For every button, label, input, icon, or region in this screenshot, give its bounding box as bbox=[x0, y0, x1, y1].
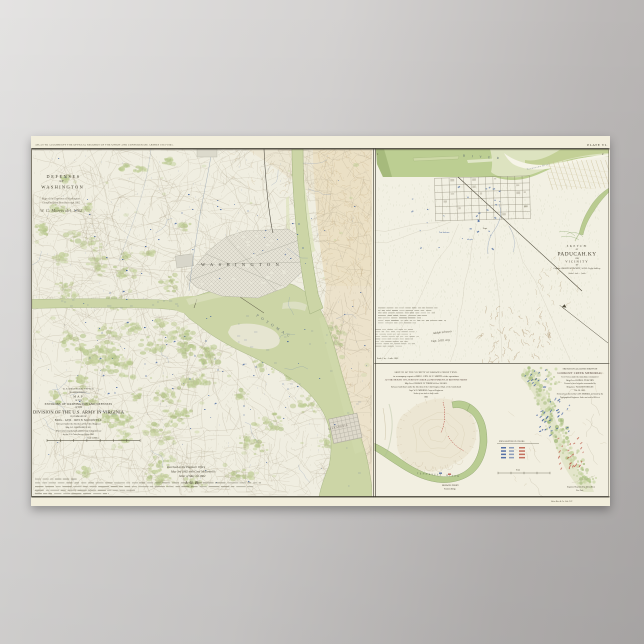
svg-text:Compiled from Boschkes map 186: Compiled from Boschkes map 1862 bbox=[42, 202, 81, 205]
svg-text:W. G. Morris del. 1862: W. G. Morris del. 1862 bbox=[40, 208, 83, 213]
svg-text:Captain ADOLPH SCHWARTZ, 2d I: Captain ADOLPH SCHWARTZ, 2d ILL. Light A… bbox=[554, 267, 602, 270]
svg-text:Brig.Gen. JOHN B. TURCHIN: Brig.Gen. JOHN B. TURCHIN bbox=[566, 379, 594, 382]
svg-text:PLATE VI.: PLATE VI. bbox=[587, 143, 608, 147]
svg-text:SKETCH OF THE VICINITY OF BROW: SKETCH OF THE VICINITY OF BROWNS FERRY T… bbox=[394, 372, 457, 374]
svg-text:BRIG. GEN. IRVIN McDOWELL: BRIG. GEN. IRVIN McDOWELL bbox=[55, 419, 102, 422]
svg-text:May 3rd 1862 with Genl McDowel: May 3rd 1862 with Genl McDowell's bbox=[170, 470, 216, 474]
svg-text:Topographical Engineers. Scal: Topographical Engineers. Scale one inch … bbox=[560, 396, 600, 399]
svg-text:Received at the Engineer Offic: Received at the Engineer Office bbox=[166, 465, 206, 469]
svg-text:1863: 1863 bbox=[424, 396, 428, 398]
svg-text:Engraved & printed by Julius B: Engraved & printed by Julius Bien bbox=[567, 486, 595, 489]
svg-text:Scale: 1 in. = 1 mile. 1861.: Scale: 1 in. = 1 mile. 1861. bbox=[377, 358, 399, 360]
svg-text:Scale: Scale bbox=[516, 470, 520, 472]
svg-text:PADUCAH.KY: PADUCAH.KY bbox=[557, 252, 596, 258]
svg-text:Pontoon Bridge: Pontoon Bridge bbox=[444, 487, 456, 490]
svg-text:BROWNS FERRY: BROWNS FERRY bbox=[442, 485, 459, 487]
svg-text:VICINITY: VICINITY bbox=[565, 260, 588, 264]
svg-text:From surveys directed by CAPT.: From surveys directed by CAPT. MERRILL a… bbox=[557, 392, 604, 395]
svg-text:Capt. W. E. MERRILL Corps of E: Capt. W. E. MERRILL Corps of Engineers bbox=[409, 389, 444, 392]
svg-text:AT THE MOUTH OF LOOKOUT CREEK: AT THE MOUTH OF LOOKOUT CREEK and MOVEME… bbox=[385, 379, 468, 382]
svg-text:IN COMMAND OF: IN COMMAND OF bbox=[70, 415, 87, 418]
svg-text:ENVIRONS OF WASHINGTON AND DEF: ENVIRONS OF WASHINGTON AND DEFENSES bbox=[45, 402, 113, 406]
svg-text:U.S. Forces under the immediat: U.S. Forces under the immediate command … bbox=[562, 375, 599, 378]
svg-text:Scale of one inch to half a mi: Scale of one inch to half a mile bbox=[414, 392, 439, 395]
svg-text:EXPLANATION OF COLORS: EXPLANATION OF COLORS bbox=[499, 440, 524, 443]
svg-text:MAP: MAP bbox=[73, 395, 84, 399]
svg-text:OF: OF bbox=[60, 180, 65, 183]
svg-text:by the U.S. Coast Survey Offic: by the U.S. Coast Survey Office 1862 bbox=[63, 433, 94, 436]
svg-text:LOOKOUT CREEK MEMORIAL: LOOKOUT CREEK MEMORIAL bbox=[558, 371, 603, 375]
svg-text:Depot: Depot bbox=[483, 228, 488, 230]
svg-text:Drawn and compiled with additi: Drawn and compiled with additions up to … bbox=[55, 429, 102, 432]
svg-text:Brig.Gen. WALDEN RIDGES: Brig.Gen. WALDEN RIDGES bbox=[567, 386, 595, 389]
svg-text:SKETCH: SKETCH bbox=[567, 245, 587, 248]
svg-text:U.S.ENGINEER OFFICE: U.S.ENGINEER OFFICE bbox=[63, 388, 94, 391]
svg-text:WASHINGTON: WASHINGTON bbox=[41, 185, 84, 190]
svg-text:ATLAS TO ACCOMPANY THE OFFICIA: ATLAS TO ACCOMPANY THE OFFICIAL RECORDS … bbox=[35, 144, 174, 147]
svg-text:New York: New York bbox=[576, 490, 583, 492]
svg-text:Map of the Environs of Washing: Map of the Environs of Washington bbox=[41, 198, 81, 201]
svg-text:rifle pits: rifle pits bbox=[467, 238, 473, 241]
svg-text:Scale 1 inch = 1 mile: Scale 1 inch = 1 mile bbox=[568, 273, 585, 275]
svg-text:WASHINGTON: WASHINGTON bbox=[201, 262, 284, 267]
svg-text:Surveyed and drawn under the d: Surveyed and drawn under the direction o… bbox=[391, 386, 461, 389]
svg-text:DIVISION OF THE U.S. ARMY IN V: DIVISION OF THE U.S. ARMY IN VIRGINIA bbox=[33, 410, 125, 415]
svg-text:Maj.Gen. GEORGE H. THOMAS Oct: Maj.Gen. GEORGE H. THOMAS Oct. 28.1863. bbox=[405, 382, 448, 385]
svg-text:Oct. 28. 1863.: Oct. 28. 1863. bbox=[574, 390, 586, 392]
svg-text:Surveyed under the direction o: Surveyed under the direction of the Chie… bbox=[56, 422, 101, 425]
svg-text:Fort Anderson: Fort Anderson bbox=[439, 231, 449, 234]
svg-text:Scale of Miles: Scale of Miles bbox=[87, 437, 99, 440]
svg-text:DEFENSES: DEFENSES bbox=[47, 174, 81, 179]
svg-text:Formed of two brigades command: Formed of two brigades commanded by bbox=[563, 382, 596, 385]
svg-text:to accompany report of BRIG.: to accompany report of BRIG. GEN. W. F. … bbox=[393, 375, 459, 378]
svg-text:Maj. J.G. BARNARD U.S.E.: Maj. J.G. BARNARD U.S.E. bbox=[66, 426, 92, 429]
svg-text:Julius Bien & Co. Lith. N.Y.: Julius Bien & Co. Lith. N.Y. bbox=[551, 501, 573, 503]
svg-text:letter of May 1st 1862: letter of May 1st 1862 bbox=[179, 474, 206, 478]
